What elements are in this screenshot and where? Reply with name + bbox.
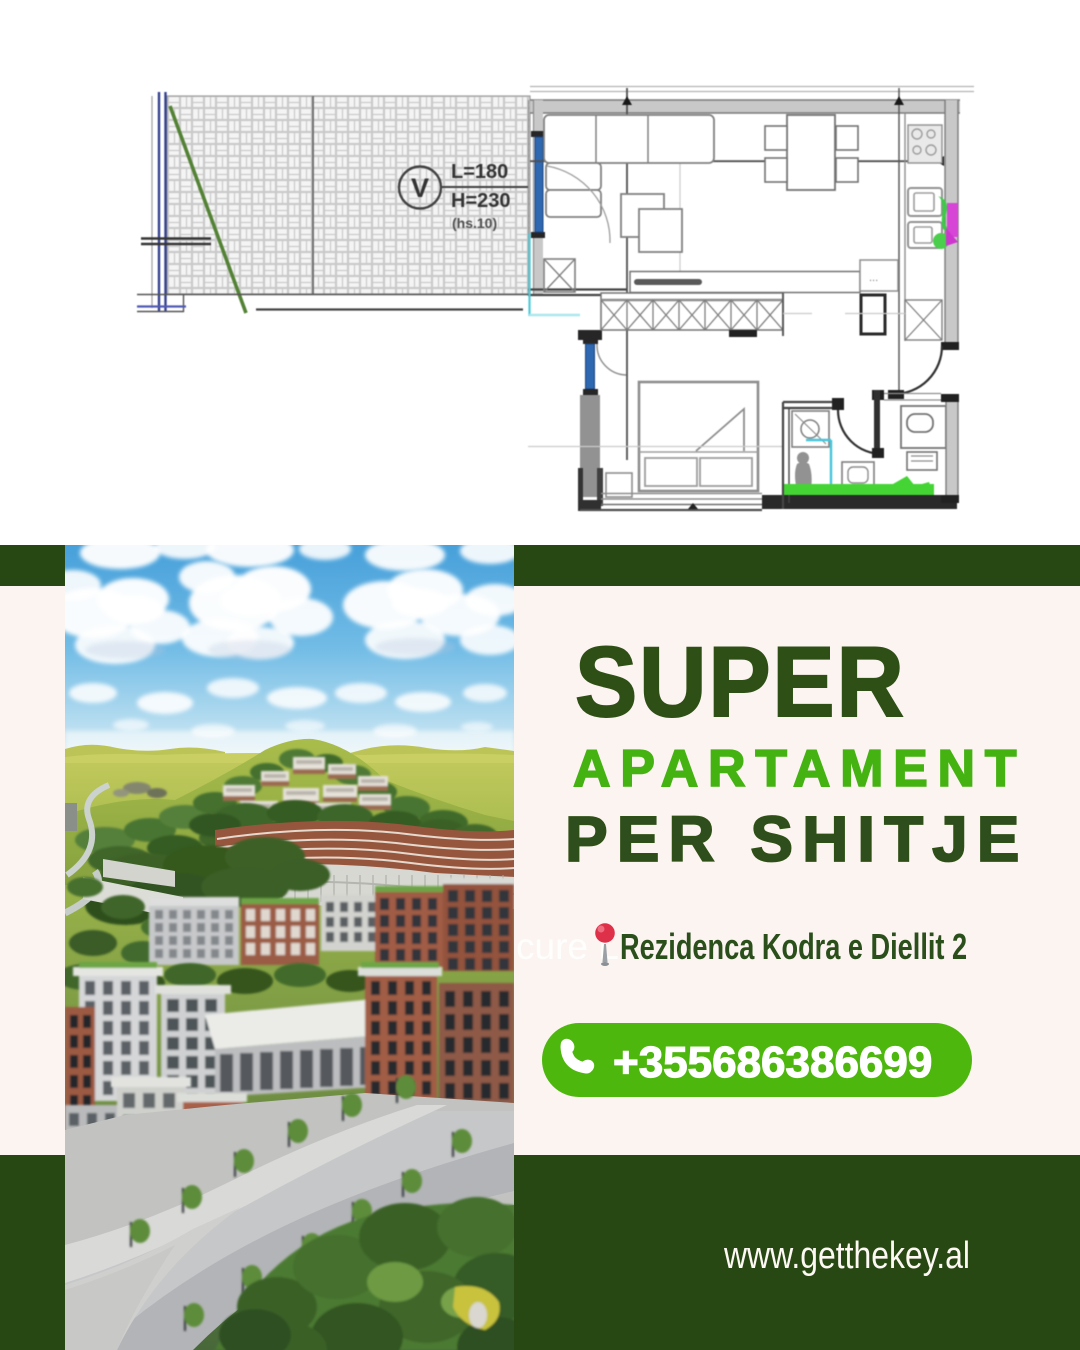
svg-text:V: V bbox=[411, 173, 429, 203]
svg-text:H=230: H=230 bbox=[451, 190, 511, 212]
svg-text:L=180: L=180 bbox=[451, 161, 508, 183]
svg-text:...: ... bbox=[869, 272, 878, 284]
svg-text:(hs.10): (hs.10) bbox=[452, 215, 497, 231]
